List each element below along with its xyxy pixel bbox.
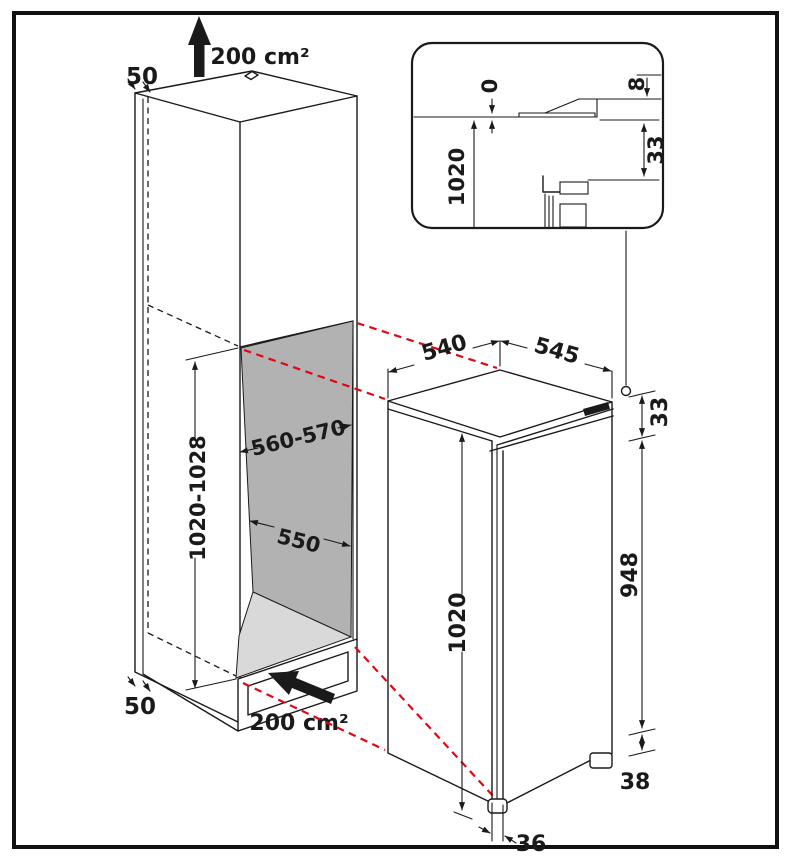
installation-diagram: 200 cm² 50 1020-1028 560-570 550 50 200 … bbox=[0, 0, 791, 859]
dim-top-vent-area: 200 cm² bbox=[210, 45, 309, 70]
dim-foot-height: 38 bbox=[620, 770, 651, 795]
rear-foot bbox=[590, 753, 612, 768]
dim-top-clearance: 50 bbox=[126, 64, 158, 90]
dim-appliance-width: 545 bbox=[531, 333, 582, 370]
appliance bbox=[388, 231, 631, 813]
dim-inset-front-gap: 0 bbox=[478, 79, 502, 94]
dim-door-height: 948 bbox=[618, 552, 643, 598]
dim-bottom-clearance: 50 bbox=[124, 694, 156, 720]
dim-inset-niche-height: 1020 bbox=[445, 148, 469, 206]
dim-top-offset: 33 bbox=[648, 397, 673, 428]
inset-leader-dot bbox=[622, 387, 631, 396]
dim-appliance-depth: 540 bbox=[419, 330, 470, 367]
detail-inset: 0 8 33 1020 bbox=[412, 43, 668, 228]
dim-niche-height: 1020-1028 bbox=[186, 435, 210, 561]
cabinet-column bbox=[135, 71, 357, 731]
dim-door-thickness: 36 bbox=[516, 832, 547, 857]
diagram-canvas: 200 cm² 50 1020-1028 560-570 550 50 200 … bbox=[0, 0, 791, 859]
dim-inset-bracket-offset: 33 bbox=[644, 135, 668, 164]
dim-bottom-vent-area: 200 cm² bbox=[249, 711, 348, 736]
front-foot bbox=[488, 799, 507, 813]
vent-up-arrow-icon bbox=[188, 16, 211, 77]
dim-inset-top-step: 8 bbox=[625, 77, 649, 92]
dim-appliance-height: 1020 bbox=[446, 592, 471, 653]
